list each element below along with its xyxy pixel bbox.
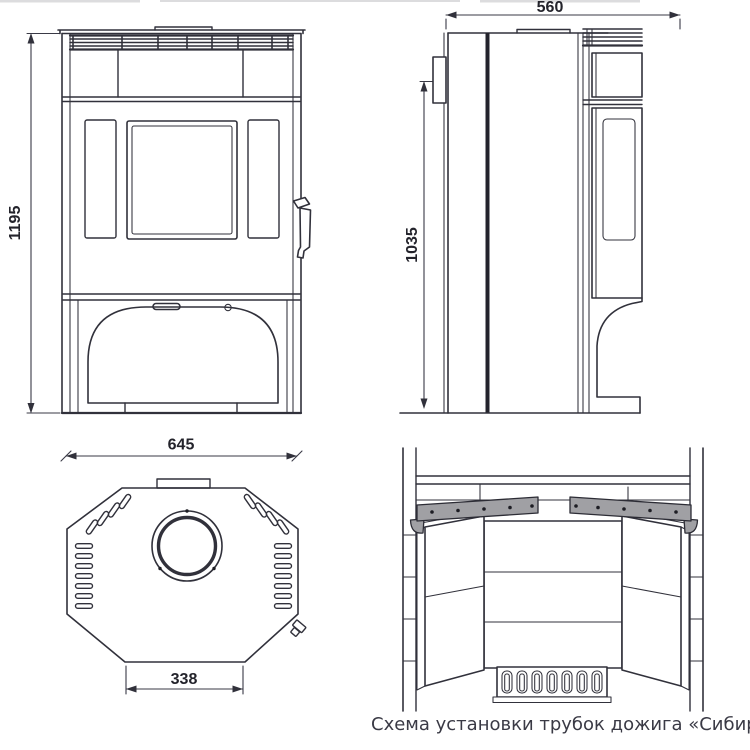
top-side-vents-left bbox=[76, 544, 93, 609]
drawing-caption: Схема установки трубок дожига «Сибирь-12… bbox=[371, 714, 750, 735]
front-door-glass bbox=[63, 120, 300, 300]
firebox-left-brick-panel bbox=[417, 512, 484, 690]
front-view: 1195 bbox=[7, 27, 311, 414]
side-view: 560 1035 bbox=[400, 0, 680, 413]
technical-drawing-page: 1195 bbox=[0, 0, 750, 750]
top-handle-knob bbox=[288, 620, 306, 638]
top-view: 645 bbox=[61, 437, 306, 695]
top-width-label: 645 bbox=[168, 437, 195, 454]
front-door-handle bbox=[294, 198, 311, 259]
side-glass-panel bbox=[603, 119, 635, 240]
grate bbox=[493, 667, 611, 703]
front-ash-door bbox=[78, 300, 287, 413]
front-height-dimension: 1195 bbox=[7, 33, 60, 414]
top-width-dimension: 645 bbox=[61, 437, 302, 462]
flue-damper-box bbox=[433, 57, 446, 103]
top-rear-tab bbox=[157, 479, 210, 488]
firebox-back-wall bbox=[484, 521, 622, 668]
flue-collar bbox=[152, 509, 222, 581]
firebox-right-brick-panel bbox=[622, 512, 689, 690]
top-base-dimension: 338 bbox=[126, 666, 243, 694]
side-depth-label: 560 bbox=[537, 0, 564, 16]
front-upper-band bbox=[63, 50, 300, 102]
side-height-label: 1035 bbox=[404, 227, 421, 263]
top-base-label: 338 bbox=[171, 671, 198, 688]
stove-technical-drawing: 1195 bbox=[0, 0, 750, 750]
side-front-panels bbox=[583, 53, 642, 413]
side-front-foot bbox=[597, 298, 642, 413]
side-depth-dimension: 560 bbox=[446, 0, 680, 29]
firebox-scheme bbox=[403, 448, 703, 711]
side-firebox-height-dimension: 1035 bbox=[404, 81, 440, 409]
front-height-label: 1195 bbox=[7, 206, 24, 241]
front-body-outline bbox=[58, 27, 305, 413]
top-side-vents-right bbox=[275, 544, 292, 609]
side-body-outline bbox=[400, 30, 640, 414]
side-front-grille bbox=[583, 29, 642, 46]
front-top-grille bbox=[70, 36, 293, 50]
top-outline bbox=[67, 479, 298, 662]
